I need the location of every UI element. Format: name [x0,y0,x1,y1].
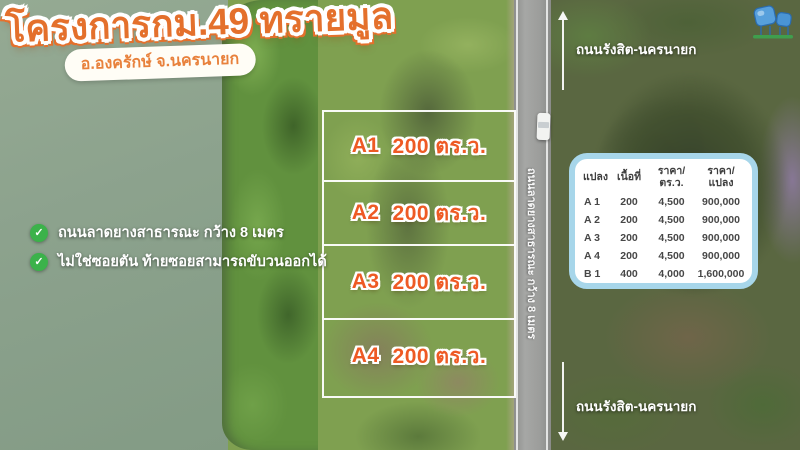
price-table: แปลง เนื้อที่ ราคา/ ตร.ว. ราคา/ แปลง A 1… [569,153,758,289]
plot-a4-id: A4 [352,344,380,368]
table-cell-area: 200 [610,247,648,265]
table-cell-price-plot: 900,000 [695,247,747,265]
table-cell-area: 200 [610,229,648,247]
plot-a1: A1 200 ตร.ว. [324,112,514,182]
table-cell-area: 200 [610,193,648,211]
road-edge-line-left [516,0,518,450]
table-cell-price-plot: 900,000 [695,193,747,211]
header: โครงการกม.49 ทรายมูล อ.องครักษ์ จ.นครนาย… [5,0,395,84]
plot-a1-id: A1 [352,134,380,158]
table-cell-plot: A 3 [580,229,610,247]
plot-a4: A4 200 ตร.ว. [324,320,514,392]
plot-a3: A3 200 ตร.ว. [324,246,514,320]
plot-a2-size: 200 ตร.ว. [393,197,487,230]
plot-a2-id: A2 [352,201,380,225]
road-edge-line-right [546,0,548,450]
water-tanks-logo-icon [750,4,796,44]
table-cell-price-wa: 4,000 [648,265,695,283]
arrow-down-icon [562,362,564,432]
plot-a3-id: A3 [352,270,380,294]
table-cell-price-wa: 4,500 [648,247,695,265]
road-name-bottom: ถนนรังสิต-นครนายก [576,395,696,417]
truck-on-road [537,113,551,140]
table-cell-area: 400 [610,265,648,283]
feature-item: ✓ ไม่ใช่ซอยตัน ท้ายซอยสามารถขับวนออกได้ [30,250,327,273]
plot-a2: A2 200 ตร.ว. [324,182,514,246]
arrow-up-icon [562,20,564,90]
col-header-area-text: เนื้อที่ [617,172,641,184]
col-header-price-per-plot-line2: แปลง [709,178,734,190]
plot-a4-size: 200 ตร.ว. [393,340,487,373]
land-listing-flyer: A1 200 ตร.ว. A2 200 ตร.ว. A3 200 ตร.ว. A… [0,0,800,450]
plot-a1-size: 200 ตร.ว. [393,130,487,163]
table-cell-plot: A 2 [580,211,610,229]
table-cell-plot: A 4 [580,247,610,265]
table-cell-price-plot: 900,000 [695,211,747,229]
feature-text: ไม่ใช่ซอยตัน ท้ายซอยสามารถขับวนออกได้ [58,250,327,273]
table-cell-area: 200 [610,211,648,229]
table-cell-price-wa: 4,500 [648,211,695,229]
col-header-price-per-wa: ราคา/ ตร.ว. [648,163,695,193]
price-table-grid: แปลง เนื้อที่ ราคา/ ตร.ว. ราคา/ แปลง A 1… [580,163,747,283]
check-icon: ✓ [30,224,48,242]
plot-boundary-grid: A1 200 ตร.ว. A2 200 ตร.ว. A3 200 ตร.ว. A… [322,110,516,398]
road-name-top: ถนนรังสิต-นครนายก [576,38,696,60]
table-cell-price-plot: 1,600,000 [695,265,747,283]
check-icon: ✓ [30,253,48,271]
feature-item: ✓ ถนนลาดยางสาธารณะ กว้าง 8 เมตร [30,221,327,244]
location-badge: อ.องครักษ์ จ.นครนายก [64,43,256,82]
project-title: โครงการกม.49 ทรายมูล [5,0,394,50]
col-header-area: เนื้อที่ [610,163,648,193]
truck-cab [538,122,549,128]
feature-text: ถนนลาดยางสาธารณะ กว้าง 8 เมตร [58,221,284,244]
col-header-plot-text: แปลง [583,172,608,184]
col-header-plot: แปลง [580,163,610,193]
road-surface-note: ถนนลาดยางสาธารณะ กว้าง 8 เมตร [523,168,541,338]
table-cell-price-wa: 4,500 [648,193,695,211]
table-cell-plot: A 1 [580,193,610,211]
feature-list: ✓ ถนนลาดยางสาธารณะ กว้าง 8 เมตร ✓ ไม่ใช่… [30,221,327,279]
table-cell-price-plot: 900,000 [695,229,747,247]
col-header-price-per-wa-line2: ตร.ว. [659,178,683,190]
water-tanks-logo-svg [750,4,796,44]
table-cell-price-wa: 4,500 [648,229,695,247]
plot-a3-size: 200 ตร.ว. [393,266,487,299]
col-header-price-per-plot: ราคา/ แปลง [695,163,747,193]
table-cell-plot: B 1 [580,265,610,283]
